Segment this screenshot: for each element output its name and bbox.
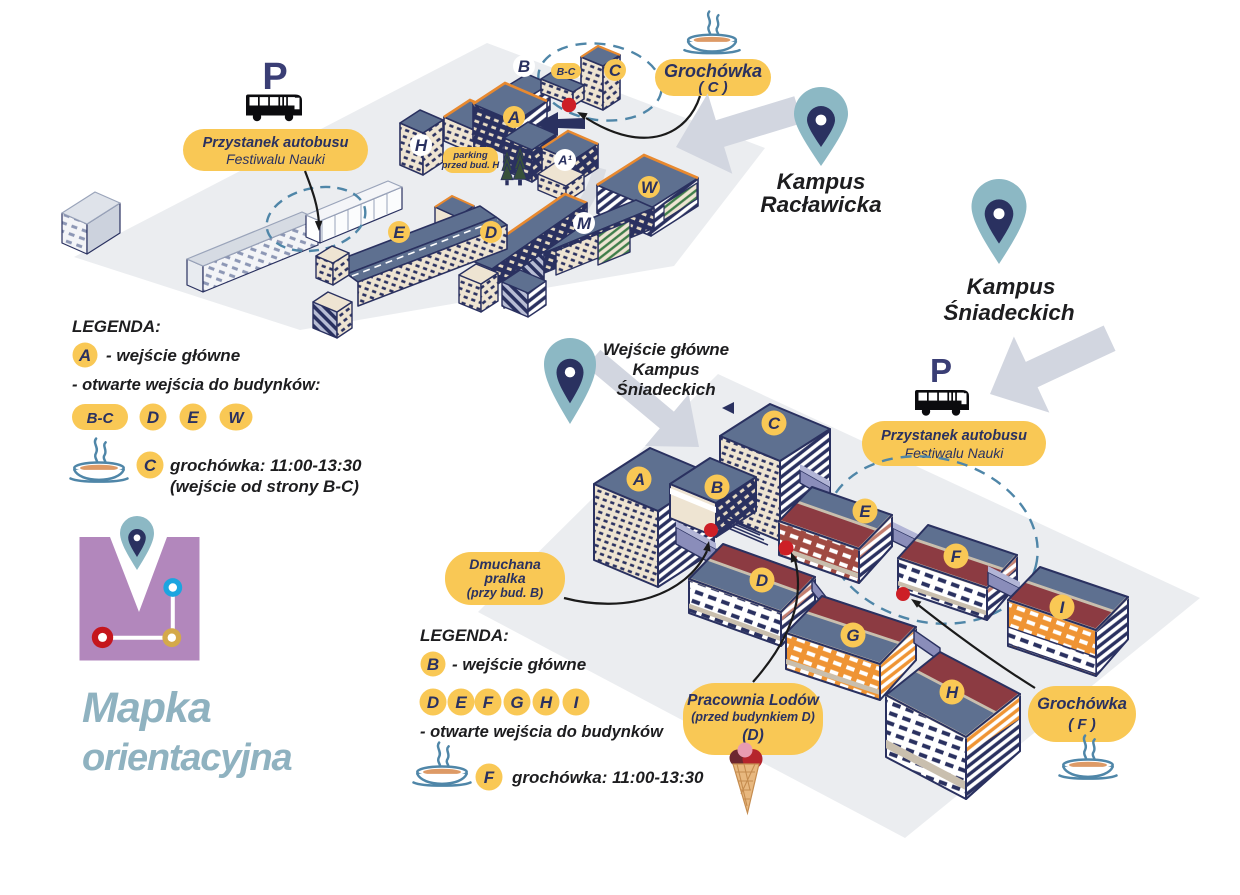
svg-text:D: D xyxy=(756,571,768,590)
svg-text:P: P xyxy=(262,56,287,98)
svg-text:(D): (D) xyxy=(742,727,764,744)
svg-text:A¹: A¹ xyxy=(557,153,572,168)
svg-text:Grochówka: Grochówka xyxy=(664,61,762,81)
svg-text:B: B xyxy=(427,655,439,674)
svg-text:A: A xyxy=(507,108,520,127)
svg-text:Kampus: Kampus xyxy=(632,360,699,379)
svg-text:D: D xyxy=(485,223,497,242)
svg-text:D: D xyxy=(147,408,159,427)
svg-text:Festiwalu Nauki: Festiwalu Nauki xyxy=(905,445,1005,461)
svg-text:W: W xyxy=(641,178,659,197)
svg-text:( C ): ( C ) xyxy=(698,79,727,96)
svg-text:Wejście główne: Wejście główne xyxy=(603,340,729,359)
svg-text:C: C xyxy=(609,61,622,80)
svg-text:- wejście główne: - wejście główne xyxy=(106,346,240,365)
svg-text:Grochówka: Grochówka xyxy=(1037,695,1127,713)
svg-text:Kampus: Kampus xyxy=(777,169,866,194)
svg-text:B: B xyxy=(518,57,530,76)
svg-text:- wejście główne: - wejście główne xyxy=(452,655,586,674)
svg-text:Śniadeckich: Śniadeckich xyxy=(943,300,1074,325)
svg-text:pralka: pralka xyxy=(483,570,525,586)
svg-text:Festiwalu Nauki: Festiwalu Nauki xyxy=(226,151,326,167)
svg-text:F: F xyxy=(483,693,494,712)
svg-text:(wejście od strony B-C): (wejście od strony B-C) xyxy=(170,477,359,496)
svg-text:grochówka: 11:00-13:30: grochówka: 11:00-13:30 xyxy=(511,768,704,787)
svg-text:F: F xyxy=(951,547,962,566)
svg-text:Śniadeckich: Śniadeckich xyxy=(616,380,715,399)
svg-text:E: E xyxy=(859,502,871,521)
svg-text:H: H xyxy=(946,683,959,702)
svg-text:B-C: B-C xyxy=(87,410,115,427)
svg-text:( F ): ( F ) xyxy=(1068,716,1096,733)
svg-text:W: W xyxy=(228,410,245,427)
svg-text:- otwarte wejścia do budynków: - otwarte wejścia do budynków xyxy=(420,723,664,741)
svg-text:Pracownia Lodów: Pracownia Lodów xyxy=(687,692,820,709)
svg-text:Przystanek autobusu: Przystanek autobusu xyxy=(203,135,349,151)
svg-text:A: A xyxy=(632,470,645,489)
svg-text:przed bud. H: przed bud. H xyxy=(441,160,501,171)
svg-text:M: M xyxy=(577,214,592,233)
svg-text:Kampus: Kampus xyxy=(967,274,1056,299)
svg-text:P: P xyxy=(930,352,952,389)
svg-text:B: B xyxy=(711,478,723,497)
svg-text:B-C: B-C xyxy=(557,66,576,78)
svg-text:LEGENDA:: LEGENDA: xyxy=(72,317,161,336)
svg-text:LEGENDA:: LEGENDA: xyxy=(420,626,509,645)
svg-text:C: C xyxy=(768,414,781,433)
svg-text:G: G xyxy=(846,626,859,645)
svg-text:E: E xyxy=(455,693,467,712)
svg-text:Mapka: Mapka xyxy=(82,684,211,732)
svg-text:E: E xyxy=(187,408,199,427)
svg-text:A: A xyxy=(78,346,91,365)
svg-text:E: E xyxy=(393,223,405,242)
svg-text:H: H xyxy=(540,693,553,712)
svg-text:(przed budynkiem D): (przed budynkiem D) xyxy=(691,710,815,724)
svg-text:D: D xyxy=(427,693,439,712)
svg-text:Przystanek autobusu: Przystanek autobusu xyxy=(881,428,1027,444)
svg-text:F: F xyxy=(484,768,495,787)
svg-text:Racławicka: Racławicka xyxy=(760,192,881,217)
svg-text:- otwarte wejścia do budynków:: - otwarte wejścia do budynków: xyxy=(72,376,320,394)
svg-text:G: G xyxy=(510,693,523,712)
svg-text:orientacyjna: orientacyjna xyxy=(82,737,293,779)
svg-text:H: H xyxy=(415,136,428,155)
svg-text:C: C xyxy=(144,456,157,475)
svg-text:(przy bud. B): (przy bud. B) xyxy=(467,586,543,600)
svg-text:grochówka: 11:00-13:30: grochówka: 11:00-13:30 xyxy=(169,456,362,475)
